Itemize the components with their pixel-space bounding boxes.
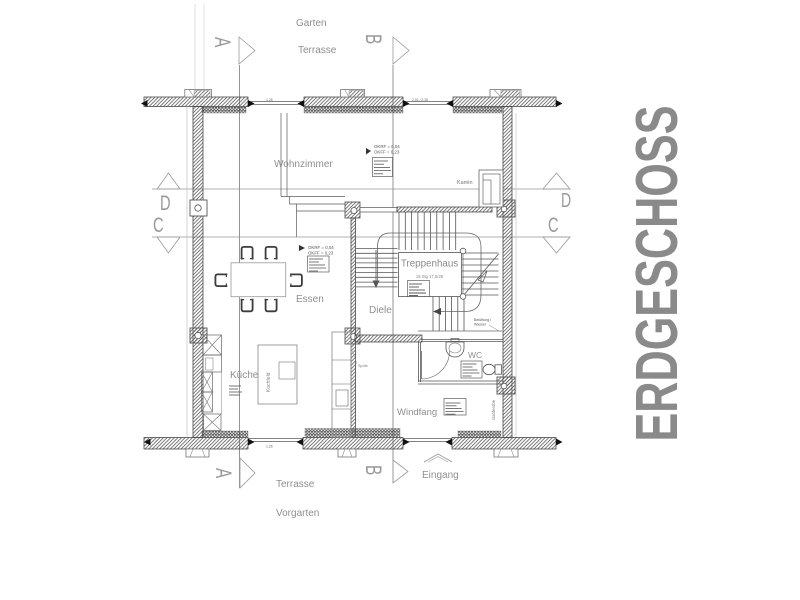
svg-text:C: C: [153, 213, 164, 236]
svg-text:OKFF = 0,23: OKFF = 0,23: [308, 250, 334, 255]
svg-text:Garten: Garten: [296, 18, 327, 29]
svg-text:Diele: Diele: [369, 305, 392, 316]
svg-text:Garderobe: Garderobe: [491, 399, 496, 420]
svg-text:D: D: [561, 188, 571, 211]
svg-text:C: C: [548, 213, 559, 236]
svg-text:Küche: Küche: [230, 370, 259, 381]
svg-text:Kamin: Kamin: [457, 180, 473, 186]
svg-text:D: D: [160, 191, 171, 214]
svg-text:WC: WC: [468, 350, 482, 360]
svg-text:1,26: 1,26: [266, 98, 273, 102]
svg-text:OKFF = 0,23: OKFF = 0,23: [374, 149, 400, 154]
svg-text:A: A: [209, 37, 233, 48]
svg-text:ERDGESCHOSS: ERDGESCHOSS: [624, 106, 690, 442]
svg-text:Terrasse: Terrasse: [276, 479, 315, 490]
svg-text:Windfang: Windfang: [397, 407, 437, 418]
svg-text:1,26: 1,26: [266, 445, 273, 449]
svg-text:Vorgarten: Vorgarten: [276, 508, 319, 519]
svg-text:18 Stg 17,5/28: 18 Stg 17,5/28: [416, 274, 444, 279]
svg-text:Essen: Essen: [296, 294, 324, 305]
svg-text:OKRF = 0,04: OKRF = 0,04: [374, 144, 400, 149]
svg-text:Wasser: Wasser: [474, 323, 487, 327]
svg-text:A: A: [210, 468, 234, 479]
svg-text:2,01 / 2,26: 2,01 / 2,26: [412, 98, 428, 102]
svg-text:Eingang: Eingang: [422, 470, 459, 481]
svg-text:OKRF = 0,04: OKRF = 0,04: [308, 245, 334, 250]
svg-text:Kochfeld: Kochfeld: [266, 372, 272, 392]
svg-text:Treppenhaus: Treppenhaus: [401, 259, 458, 270]
svg-text:B: B: [360, 465, 384, 475]
svg-text:B: B: [360, 34, 384, 44]
svg-text:Wohnzimmer: Wohnzimmer: [274, 159, 333, 170]
svg-text:Belüftung /: Belüftung /: [474, 318, 491, 322]
svg-text:Terrasse: Terrasse: [298, 45, 337, 56]
svg-text:Spüle: Spüle: [358, 364, 368, 368]
